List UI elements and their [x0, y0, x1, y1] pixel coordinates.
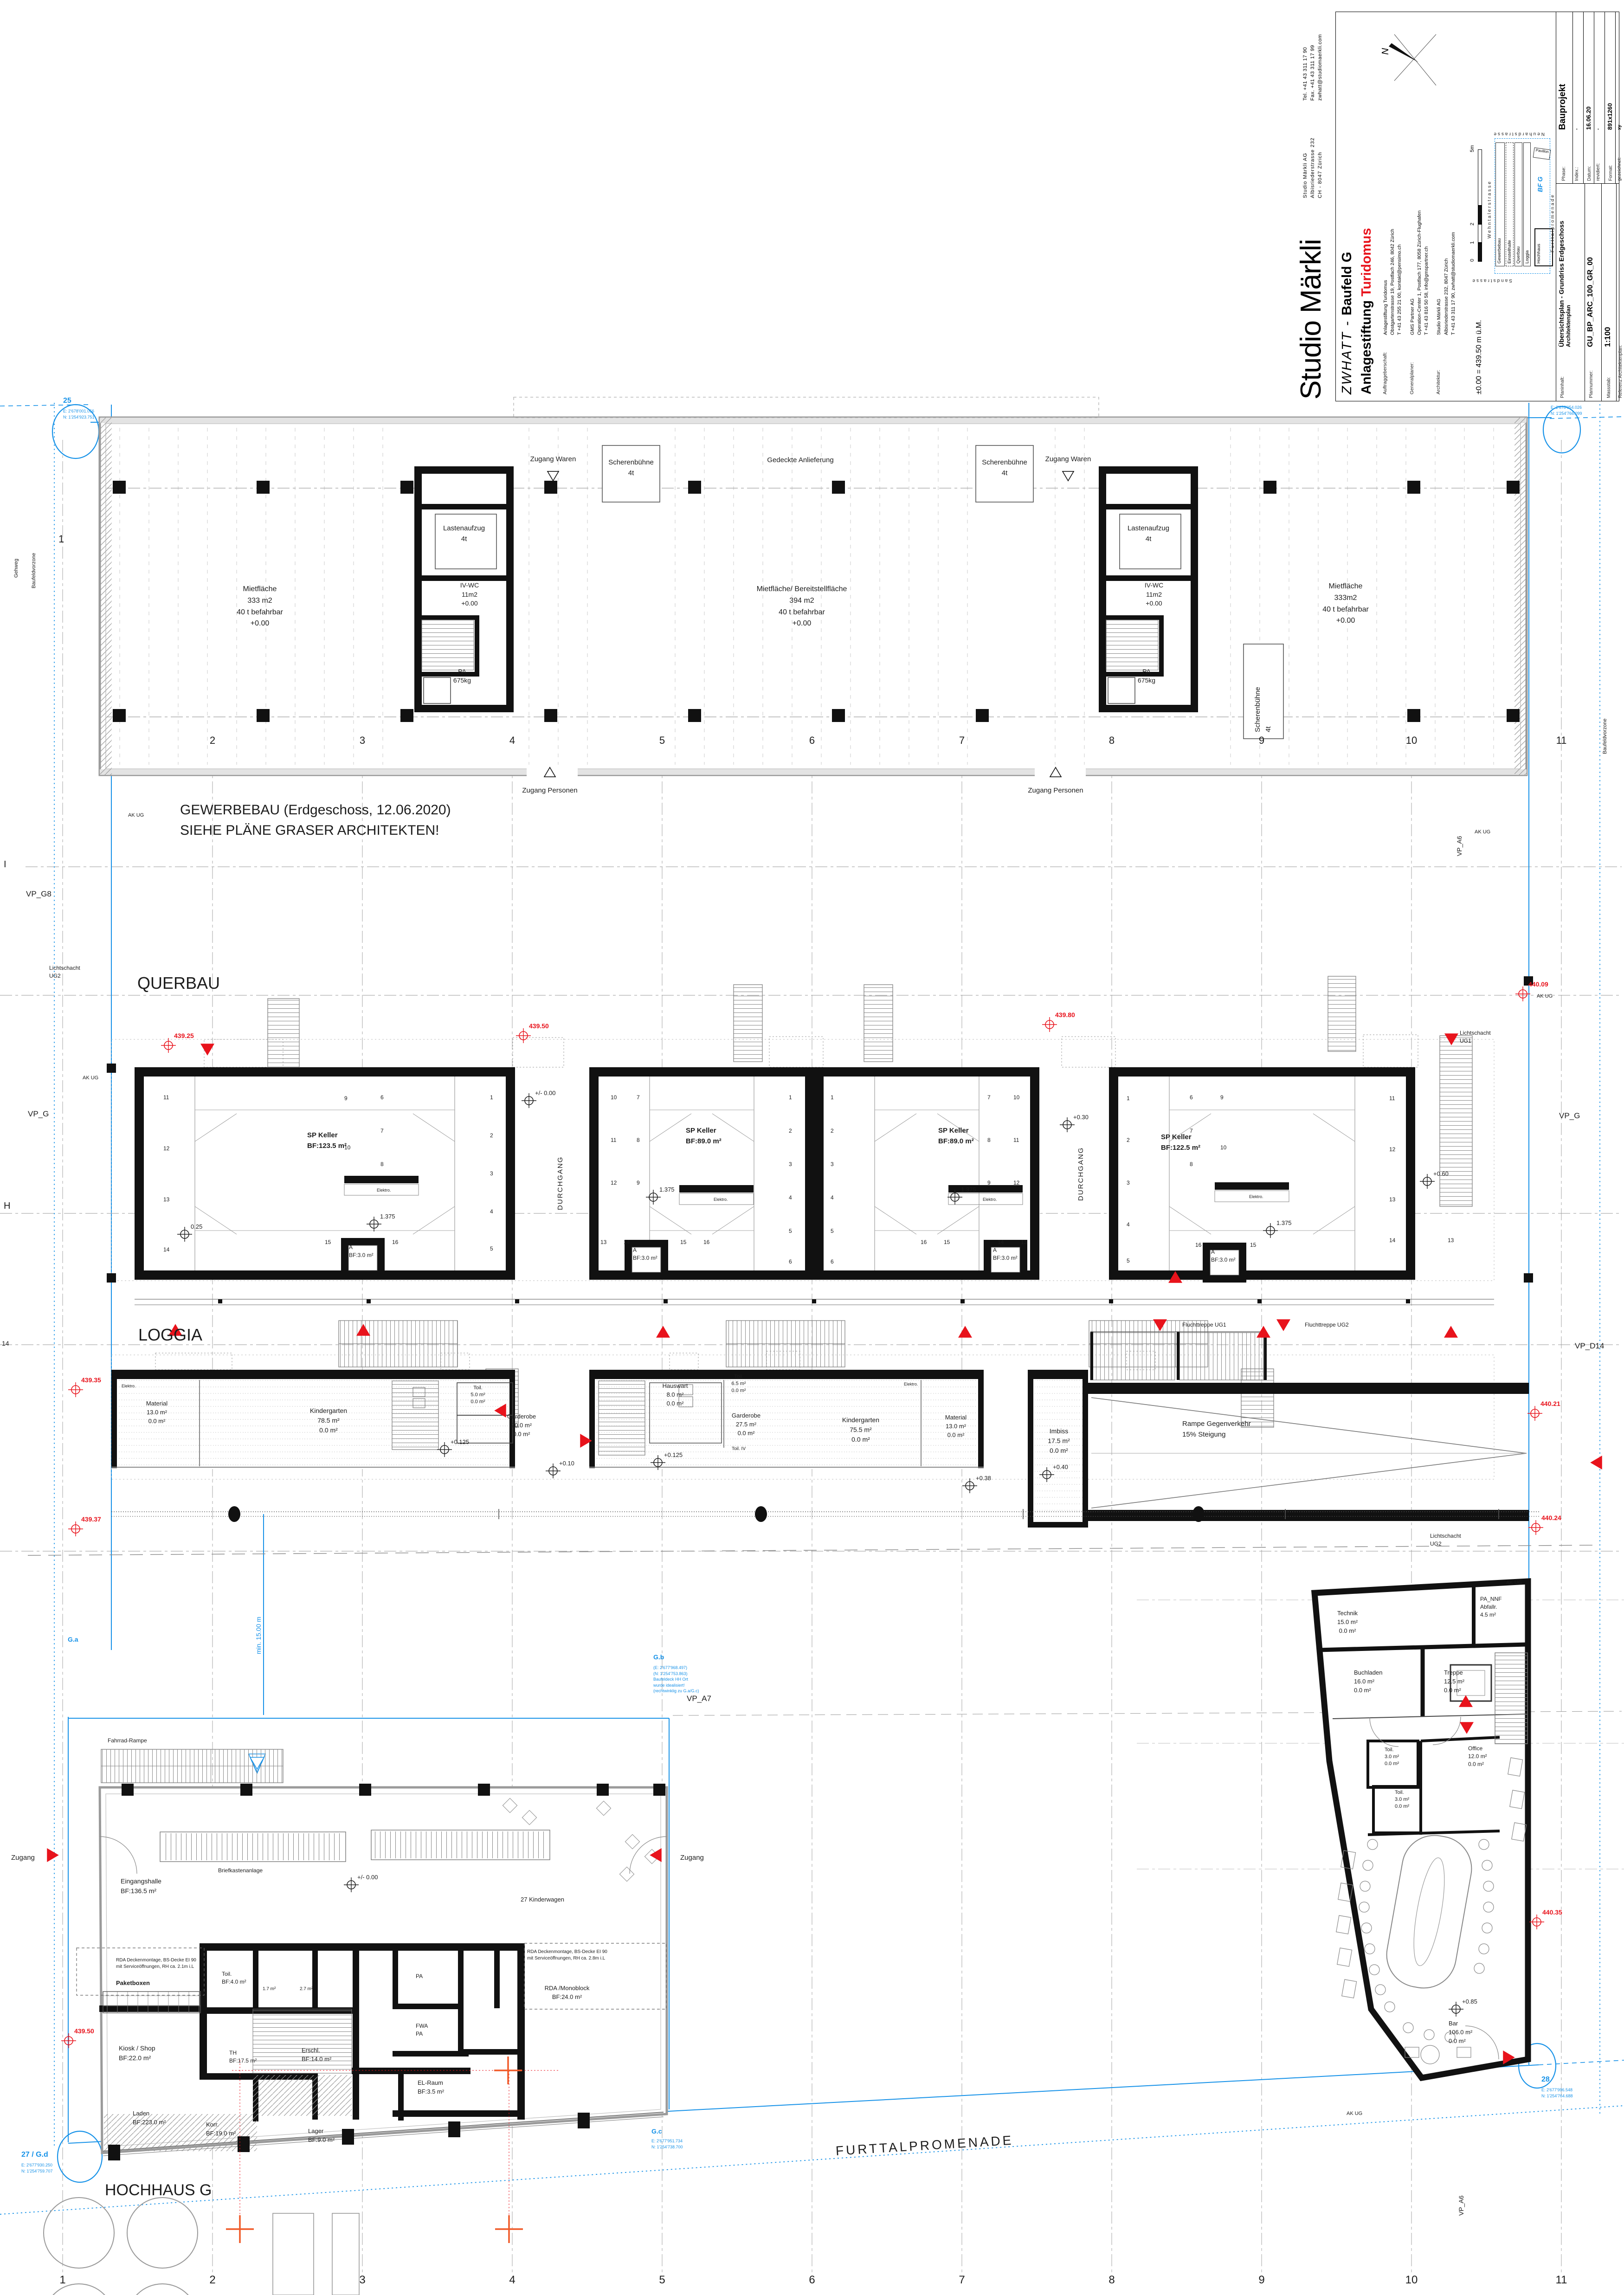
project-name: ZWHATT -: [1340, 320, 1354, 394]
site-key-bar-loggia: Loggia: [1523, 142, 1531, 266]
zugang-hochhaus-left: Zugang: [11, 1853, 35, 1863]
kindergarten-2: Kindergarten 75.5 m² 0.0 m²: [842, 1415, 879, 1444]
contact-role: Auftraggeberschaft:: [1382, 335, 1404, 394]
keller-cell: 5: [831, 1228, 834, 1235]
plan-sheet: GEWERBEBAU (Erdgeschoss, 12.06.2020) SIE…: [0, 0, 1624, 2295]
keller-cell: 7: [1190, 1128, 1193, 1135]
keller-cell: 14: [163, 1246, 169, 1254]
gezeichnet-label: gezeichnet:: [1617, 130, 1622, 181]
keller-cell: 5: [789, 1228, 792, 1235]
keller-cell: 3: [831, 1161, 834, 1168]
keller-cell: 16: [703, 1239, 709, 1246]
keller-cell: 2: [1127, 1137, 1130, 1144]
keller-cell: 6: [380, 1094, 384, 1102]
index-label: Index.:: [1574, 130, 1579, 181]
el-raum: EL-Raum BF:3.5 m²: [418, 2079, 444, 2096]
keller-cell: 3: [490, 1170, 493, 1178]
scherenbuehne-top-left: Scherenbühne 4t: [608, 458, 654, 478]
ak-ug-querbau-left: AK UG: [83, 1075, 98, 1081]
keller-cell: 13: [1021, 1239, 1027, 1246]
keller-cell: 12: [163, 1145, 169, 1153]
baufeldvorzone-left: Baufeldvorzone: [31, 553, 37, 588]
keller-cell: 10: [344, 1144, 350, 1152]
red-elevation-point: 439.25: [174, 1031, 194, 1040]
grid-col-top-11: 11: [1556, 734, 1567, 748]
keller-cell: 8: [637, 1137, 640, 1144]
grid-col-bottom-7: 7: [959, 2273, 965, 2287]
keller-cell: 1: [490, 1094, 493, 1102]
eingangshalle: Eingangshalle BF:136.5 m²: [121, 1876, 161, 1896]
planinhalt-value-2: Architektenplan: [1565, 305, 1572, 347]
red-elevation-point: 440.24: [1541, 1514, 1561, 1522]
min-15-dim: min. 15.00 m: [254, 1617, 263, 1654]
mietflaeche-mitte: Mietfläche/ Bereitstellfläche 394 m2 40 …: [757, 584, 847, 630]
keller-cell: 15: [944, 1239, 950, 1246]
rda-monoblock: RDA /Monoblock BF:24.0 m²: [545, 1984, 590, 2002]
elevation-point: +0.125: [664, 1451, 683, 1459]
scherenbuehne-top-right: Scherenbühne 4t: [982, 458, 1027, 478]
grid-col-bottom-9: 9: [1258, 2273, 1264, 2287]
contact-text: GMS Partner AG Operation-Center 1, Postf…: [1409, 211, 1431, 335]
contact-block: Auftraggeberschaft:Anlagestiftung Turido…: [1382, 176, 1463, 394]
sp-keller-2: SP Keller BF:89.0 m²: [686, 1126, 722, 1147]
keller-cell: 7: [987, 1094, 991, 1102]
buchladen: Buchladen 16.0 m² 0.0 m²: [1354, 1669, 1382, 1695]
keller-cell: 10: [1013, 1094, 1019, 1102]
datum-label: Datum:: [1587, 130, 1592, 181]
office-address: Studio Märkli AG Albisriederstrasse 232 …: [1302, 137, 1324, 198]
toil-iv: Toil. IV: [732, 1446, 746, 1452]
toil-loggia-1: Toil. 5.0 m² 0.0 m²: [470, 1385, 485, 1405]
toil-pavillon-1: Toil. 3.0 m² 0.0 m²: [1385, 1747, 1399, 1767]
keller-cell: 3: [789, 1161, 792, 1168]
red-elevation-point: 439.50: [74, 2027, 94, 2035]
contact-text: Studio Märkli AG Albisriederstrasse 232,…: [1436, 232, 1457, 335]
office: Office 12.0 m² 0.0 m²: [1468, 1745, 1487, 1768]
planinhalt-label: Planinhalt:: [1560, 347, 1565, 398]
north-label: N: [1380, 48, 1391, 55]
keller-cell: 1: [831, 1094, 834, 1102]
datum-line: ±0.00 = 439.50 m ü.M.: [1475, 320, 1483, 394]
toil-loggia-2: Toil. 6.5 m² 0.0 m²: [731, 1373, 746, 1394]
site-key-plan: WehntalerstrasseSandstrasseNeuhardstrass…: [1494, 81, 1553, 322]
keller-cell: 14: [624, 1239, 630, 1246]
elektro-3: Elektro.: [983, 1197, 997, 1203]
scale-segment: [1478, 149, 1482, 206]
sp-keller-4: SP Keller BF:122.5 m²: [1161, 1132, 1200, 1153]
keller-cell: 13: [163, 1196, 169, 1204]
keller-cell: 15: [1250, 1242, 1256, 1249]
iv-wc-left: IV-WC 11m2 +0.00: [460, 581, 479, 608]
erschliessung: Erschl. BF:14.0 m²: [302, 2046, 331, 2064]
gehweg: Gehweg: [13, 559, 19, 578]
lastenaufzug-right: Lastenaufzug 4t: [1128, 523, 1169, 544]
office-contact: Tel. +41 43 311 17 90 Fax. +41 43 311 17…: [1302, 34, 1324, 101]
survey-point-coords: E: 2'678'001.056 N: 1'254'923.751: [63, 408, 95, 420]
elektro-2: Elektro.: [714, 1197, 728, 1203]
grid-col-top-8: 8: [1109, 734, 1115, 748]
pa-right: PA 675kg: [1138, 667, 1155, 685]
keller-cell: 12: [1389, 1146, 1395, 1154]
scale-tick: 0: [1469, 259, 1475, 262]
elevation-point: 0.25: [191, 1223, 202, 1231]
ak-ug-pavillon-top: AK UG: [1506, 1579, 1522, 1586]
red-elevation-point: 439.37: [81, 1515, 101, 1523]
fluchttreppe-ug2: Fluchttreppe UG2: [1305, 1322, 1349, 1329]
contact-text: Anlagestiftung Turidomus Obstgartenstras…: [1382, 229, 1404, 335]
keller-cell: 5: [1127, 1257, 1130, 1265]
keller-cell: 8: [987, 1137, 991, 1144]
keller-cell: 2: [490, 1132, 493, 1140]
grid-col-bottom-5: 5: [659, 2273, 665, 2287]
keller-cell: 3: [1127, 1180, 1130, 1187]
scale-tick: 5m: [1469, 145, 1475, 152]
contact-0: Auftraggeberschaft:Anlagestiftung Turido…: [1382, 176, 1404, 394]
kindergarten-1: Kindergarten 78.5 m² 0.0 m²: [310, 1406, 347, 1435]
revidiert-label: revidiert:: [1596, 130, 1601, 181]
survey-point-id: 25: [63, 396, 71, 406]
keller-cell: 13: [1448, 1237, 1454, 1244]
querbau-title: QUERBAU: [137, 973, 220, 994]
rampe-gegenverkehr: Rampe Gegenverkehr 15% Steigung: [1182, 1419, 1251, 1440]
keller-cell: 8: [1190, 1161, 1193, 1168]
scale-tick: 2: [1469, 223, 1475, 226]
scale-tick: 1: [1469, 241, 1475, 244]
phase-label: Phase:: [1561, 130, 1566, 181]
zugang-hochhaus-right: Zugang: [680, 1853, 704, 1863]
ak-ug-gewerbe-right: AK UG: [1475, 829, 1490, 835]
keller-cell: 13: [600, 1239, 606, 1246]
format-value: 891x1260: [1606, 103, 1613, 130]
site-key-bar-querbau: Querbau: [1514, 142, 1522, 266]
keller-cell: 5: [490, 1245, 493, 1253]
massstab-value: 1:100: [1603, 327, 1612, 347]
format-label: Format:: [1608, 130, 1613, 181]
ak-ug-gewerbe-left: AK UG: [128, 812, 144, 819]
iv-wc-right: IV-WC 11m2 +0.00: [1145, 581, 1163, 608]
schacht-a-1: A BF:3.0 m²: [349, 1244, 374, 1259]
survey-point-coords: E: 2'677'996.548 N: 1'254'764.688: [1541, 2087, 1573, 2099]
rda-note-left: RDA Deckenmontage, BS-Decke EI 90 mit Se…: [116, 1957, 196, 1970]
contact-role: Architektur:: [1436, 335, 1457, 394]
pa-hochhaus: PA: [416, 1973, 423, 1980]
survey-point-id: 28: [1541, 2075, 1550, 2085]
grid-col-top-2: 2: [210, 734, 215, 748]
material-1: Material 13.0 m² 0.0 m²: [146, 1399, 168, 1426]
keller-cell: 16: [392, 1239, 398, 1246]
site-key-bar-einstellhalle: Einstellhalle: [1506, 142, 1514, 266]
contact-1: Generalplaner:GMS Partner AG Operation-C…: [1409, 176, 1431, 394]
survey-point-coords: E: 2'677'930.250 N: 1'254'759.707: [21, 2162, 53, 2174]
street-sandstrasse: Sandstrasse: [1471, 278, 1512, 283]
elevation-point: +0.125: [451, 1438, 469, 1446]
toil-hochhaus: Toil. BF:4.0 m²: [222, 1970, 246, 1986]
schacht-a-2: A BF:3.0 m²: [633, 1246, 657, 1262]
phase-value: Bauprojekt: [1558, 84, 1568, 130]
keller-cell: 2: [789, 1128, 792, 1135]
vp-g-right: VP_G: [1559, 1111, 1580, 1121]
keller-cell: 12: [1013, 1180, 1019, 1187]
keller-cell: 15: [325, 1239, 331, 1246]
keller-cell: 10: [1220, 1144, 1226, 1152]
loggia-title: LOGGIA: [138, 1324, 202, 1346]
vp-a6-top: VP_A6: [1455, 836, 1463, 856]
site-key-bf-g: BF G: [1536, 177, 1544, 192]
red-elevation-point: 440.35: [1542, 1908, 1562, 1916]
keller-cell: 9: [637, 1180, 640, 1187]
elevation-point: 1.375: [961, 1186, 976, 1194]
grid-col-bottom-11: 11: [1556, 2273, 1567, 2287]
kiosk-shop: Kiosk / Shop BF:22.0 m²: [119, 2044, 155, 2063]
point-ga: G.a: [68, 1635, 78, 1644]
pa-left: PA 675kg: [453, 667, 471, 685]
keller-cell: 13: [1389, 1196, 1395, 1204]
client-title: Anlagestiftung Turidomus: [1359, 228, 1374, 394]
gedeckte-anlieferung: Gedeckte Anlieferung: [767, 456, 833, 465]
fwa-pa: FWA PA: [416, 2022, 428, 2038]
keller-cell: 4: [831, 1194, 834, 1202]
sp-keller-1: SP Keller BF:123.5 m²: [307, 1130, 347, 1151]
gewerbebau-note: GEWERBEBAU (Erdgeschoss, 12.06.2020) SIE…: [180, 800, 451, 840]
grid-col-top-7: 7: [959, 734, 965, 748]
index-value: -: [1574, 129, 1579, 130]
elevation-point: 1.375: [380, 1213, 395, 1221]
baufeldvorzone-right: Baufeldvorzone: [1602, 719, 1608, 754]
keller-cell: 10: [611, 1094, 617, 1102]
zugang-waren-right: Zugang Waren: [1045, 455, 1091, 464]
street-neuhardstrasse: Neuhardstrasse: [1492, 131, 1545, 136]
garderobe-2: Garderobe 27.5 m² 0.0 m²: [732, 1412, 760, 1438]
material-2: Material 13.0 m² 0.0 m²: [945, 1413, 967, 1440]
vp-d14: VP_D14: [1575, 1341, 1604, 1351]
wc-27: 2.7 m²: [300, 1986, 313, 1992]
keller-cell: 2: [831, 1128, 834, 1135]
massstab-label: Massstab:: [1606, 347, 1611, 398]
elektro-loggia-2: Elektro.: [904, 1382, 918, 1387]
elevation-point: +0.60: [1433, 1170, 1449, 1178]
zugang-waren-left: Zugang Waren: [530, 455, 576, 464]
lichtschacht-ug2-right: Lichtschacht UG2: [1430, 1532, 1461, 1548]
keller-cell: 14: [1389, 1237, 1395, 1244]
elevation-point: +/- 0.00: [535, 1089, 555, 1097]
contact-2: Architektur:Studio Märkli AG Albisrieder…: [1436, 176, 1457, 394]
grid-col-bottom-10: 10: [1405, 2273, 1418, 2287]
furttalpromenade-label: FURTTALPROMENADE: [835, 2132, 1014, 2160]
scale-segment: [1478, 242, 1482, 262]
keller-cell: 16: [1195, 1242, 1201, 1249]
korridor: Korr. BF:19.0 m²: [206, 2121, 236, 2138]
keller-cell: 14: [998, 1239, 1004, 1246]
plan-data-table: Planinhalt: Übersichtsplan - Grundriss E…: [1556, 12, 1619, 401]
revidiert-value: -: [1596, 129, 1601, 130]
keller-cell: 6: [1190, 1094, 1193, 1102]
vp-g-left: VP_G: [28, 1109, 49, 1119]
keller-cell: 9: [1220, 1094, 1224, 1102]
laden: Laden BF:223.0 m²: [133, 2109, 166, 2127]
grid-col-top-9: 9: [1259, 734, 1264, 748]
vp-a6-bottom: VP_A6: [1457, 2195, 1465, 2216]
grid-col-bottom-6: 6: [809, 2273, 815, 2287]
lastenaufzug-left: Lastenaufzug 4t: [443, 523, 485, 544]
planinhalt-value: Übersichtsplan - Grundriss Erdgeschoss: [1558, 221, 1565, 347]
datum-value: 16.06.20: [1585, 106, 1592, 130]
scale-bar: 0125m: [1469, 109, 1489, 262]
keller-cell: 6: [789, 1258, 792, 1266]
scale-segment: [1478, 205, 1482, 225]
keller-cell: 8: [380, 1161, 384, 1168]
point-gc: G.c: [651, 2127, 662, 2135]
technik: Technik 15.0 m² 0.0 m²: [1337, 1609, 1358, 1636]
elevation-point: +0.40: [1053, 1463, 1068, 1471]
north-arrow-icon: [1380, 25, 1445, 95]
keller-cell: 4: [490, 1208, 493, 1216]
elektro-1: Elektro.: [377, 1188, 391, 1193]
sp-keller-3: SP Keller BF:89.0 m²: [938, 1126, 974, 1147]
keller-cell: 11: [1013, 1137, 1019, 1144]
schacht-a-3: A BF:3.0 m²: [993, 1246, 1018, 1262]
lager: Lager BF:9.0 m²: [308, 2127, 335, 2145]
project-field: Baufeld G: [1340, 252, 1354, 316]
point-gb-note: (E: 2'677'968.497) (N: 1'254'753.863) Ba…: [653, 1665, 699, 1694]
zugang-personen-left: Zugang Personen: [522, 786, 577, 795]
grid-col-bottom-8: 8: [1108, 2273, 1115, 2287]
grid-col-top-10: 10: [1406, 734, 1417, 748]
treppe-pavillon: Treppe 12.5 m² 0.0 m²: [1444, 1669, 1464, 1695]
elevation-point: +0.38: [976, 1475, 991, 1483]
north-arrow: N: [1380, 25, 1445, 95]
contact-role: Generalplaner:: [1409, 335, 1431, 394]
keller-cell: 9: [987, 1180, 991, 1187]
title-block: Studio Märkli Studio Märkli AG Albisried…: [1291, 12, 1620, 401]
title-block-frame: ZWHATT -Baufeld G Anlagestiftung Turidom…: [1335, 12, 1619, 401]
fluchttreppe-ug1: Fluchttreppe UG1: [1182, 1322, 1226, 1329]
elevation-point: +0.30: [1073, 1114, 1089, 1122]
durchgang-1: DURCHGANG: [556, 1156, 565, 1210]
elektro-loggia-1: Elektro.: [122, 1384, 136, 1389]
zugang-personen-right: Zugang Personen: [1028, 786, 1083, 795]
client-name-red: Turidomus: [1359, 228, 1374, 297]
keller-cell: 11: [163, 1094, 169, 1102]
pa-nnf: PA_NNF Abfallr. 4.5 m²: [1480, 1595, 1502, 1618]
ak-ug-pavillon-bottom: AK UG: [1347, 2110, 1362, 2117]
durchgang-2: DURCHGANG: [1076, 1147, 1086, 1201]
keller-cell: 11: [611, 1137, 616, 1144]
street-wehntalerstrasse: Wehntalerstrasse: [1487, 180, 1492, 239]
toil-pavillon-2: Toil. 3.0 m² 0.0 m²: [1395, 1789, 1409, 1810]
keller-cell: 6: [831, 1258, 834, 1266]
plan-data-left: Planinhalt: Übersichtsplan - Grundriss E…: [1556, 183, 1619, 401]
project-title: ZWHATT -Baufeld G: [1340, 252, 1355, 394]
keller-cell: 1: [1127, 1095, 1130, 1102]
vp-a7: VP_A7: [687, 1694, 711, 1704]
keller-cell: 7: [380, 1128, 384, 1135]
ak-ug-querbau-right: AK UG: [1537, 993, 1553, 999]
elevation-point: 1.375: [659, 1186, 675, 1194]
red-elevation-point: 440.21: [1540, 1399, 1560, 1408]
grid-col-bottom-2: 2: [209, 2273, 215, 2287]
plan-data-right: Phase: Bauprojekt Index.: - Datum: 16.06…: [1556, 12, 1619, 184]
grid-col-top-6: 6: [809, 734, 815, 748]
keller-cell: 9: [344, 1095, 348, 1102]
grid-col-bottom-4: 4: [509, 2273, 515, 2287]
client-name: Anlagestiftung: [1359, 297, 1374, 394]
keller-cell: 1: [789, 1094, 792, 1102]
keller-cell: 7: [637, 1094, 640, 1102]
point-gb: G.b: [653, 1653, 664, 1661]
grid-col-bottom-3: 3: [359, 2273, 365, 2287]
elektro-4: Elektro.: [1249, 1194, 1263, 1200]
imbiss: Imbiss 17.5 m² 0.0 m²: [1048, 1426, 1070, 1456]
keller-cell: 16: [921, 1239, 927, 1246]
keller-cell: 4: [1127, 1221, 1130, 1229]
red-elevation-point: 439.50: [529, 1022, 549, 1030]
briefkastenanlage: Briefkastenanlage: [218, 1867, 263, 1875]
schacht-a-4: A BF:3.0 m²: [1211, 1248, 1236, 1264]
red-elevation-point: 439.35: [81, 1376, 101, 1384]
row-label-14: 14: [2, 1339, 9, 1347]
red-elevation-point: 439.80: [1055, 1011, 1075, 1019]
elevation-point: 1.375: [1276, 1219, 1292, 1227]
grid-col-top-4: 4: [509, 734, 515, 748]
survey-point-coords: E: 2'678'054.026 N: 1'254'766.099: [1551, 405, 1582, 416]
elevation-point: +/- 0.00: [357, 1874, 378, 1882]
garderobe-1: Garderobe 20.0 m² 0.0 m²: [507, 1412, 536, 1439]
fahrrad-rampe: Fahrrad-Rampe: [108, 1737, 147, 1745]
plannummer-value: GU_BP_ARC_100_GR_00: [1586, 257, 1595, 347]
wc-17: 1.7 m²: [263, 1986, 276, 1992]
site-key-bar-gewerbebau: Gewerbebau: [1495, 142, 1505, 266]
vp-g8: VP_G8: [26, 889, 52, 899]
rda-note-right: RDA Deckenmontage, BS-Decke EI 90 mit Se…: [527, 1949, 607, 1962]
scherenbuehne-right: Scherenbühne 4t: [1253, 687, 1274, 732]
elevation-point: +0.85: [1462, 1998, 1477, 2006]
kinderwagen: 27 Kinderwagen: [521, 1896, 564, 1904]
grid-col-top-3: 3: [360, 734, 365, 748]
grid-label-1-top: 1: [58, 533, 64, 546]
mietflaeche-left: Mietfläche 333 m2 40 t befahrbar +0.00: [237, 584, 283, 630]
keller-cell: 15: [680, 1239, 686, 1246]
hochhaus-title: HOCHHAUS G: [105, 2180, 212, 2200]
paketboxen: Paketboxen: [116, 1979, 150, 1987]
row-letter-h: H: [4, 1200, 10, 1212]
red-elevation-point: 440.09: [1528, 980, 1548, 988]
survey-point-id: 27 / G.d: [21, 2150, 48, 2160]
row-letter-i: I: [4, 858, 6, 870]
studio-maerkli-logo: Studio Märkli: [1295, 239, 1328, 400]
scale-segment: [1478, 224, 1482, 243]
hauswart: Hauswart 8.0 m² 0.0 m²: [663, 1382, 688, 1408]
keller-cell: 11: [1389, 1095, 1395, 1102]
bar: Bar 106.0 m² 0.0 m²: [1449, 2019, 1472, 2046]
lichtschacht-ug1-right: Lichtschacht UG1: [1460, 1029, 1491, 1045]
referenz-label: Referenz Architektenplan:: [1618, 315, 1623, 398]
mietflaeche-right: Mietfläche 333m2 40 t befahrbar +0.00: [1322, 581, 1369, 627]
gezeichnet-value: xy: [1617, 125, 1622, 130]
site-key-hochhaus: Hochhaus: [1534, 228, 1553, 266]
keller-cell: 12: [611, 1180, 617, 1187]
grid-col-top-5: 5: [659, 734, 665, 748]
elevation-point: +0.10: [559, 1460, 574, 1468]
grid-col-bottom-1: 1: [59, 2273, 65, 2287]
point-gc-note: E: 2'677'951.734 N: 1'254'738.700: [651, 2138, 683, 2150]
keller-cell: 4: [789, 1194, 792, 1202]
th-raum: TH BF:17.5 m²: [229, 2049, 257, 2065]
logo-strip: Studio Märkli Studio Märkli AG Albisried…: [1291, 12, 1334, 401]
lichtschacht-ug2-left: Lichtschacht UG2: [49, 964, 80, 980]
plannummer-label: Plannummer:: [1589, 347, 1594, 398]
